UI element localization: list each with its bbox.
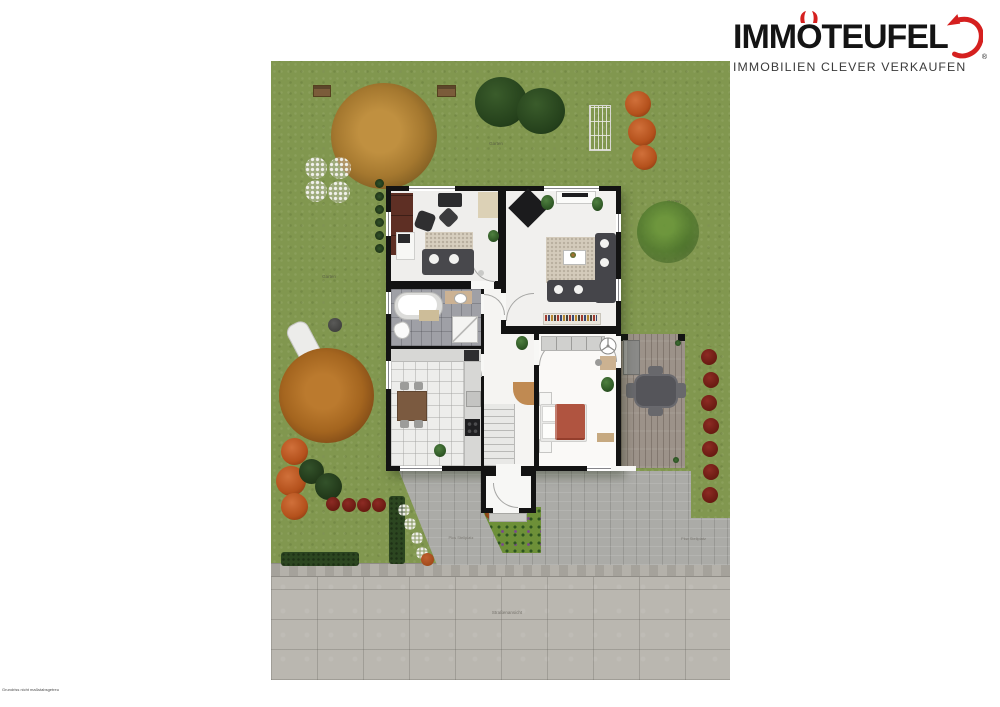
cooktop <box>465 419 480 436</box>
window <box>616 279 621 301</box>
garden-label: Garten <box>304 275 354 280</box>
potted-plant <box>488 230 499 242</box>
red-bush <box>372 498 386 512</box>
house-floorplan <box>386 186 621 471</box>
parking-label: Pkw Stellplatz <box>421 536 501 540</box>
brand-post: TEUFEL <box>822 18 948 56</box>
potted-plant <box>592 197 603 211</box>
window <box>386 361 391 389</box>
footer-disclaimer: Grundriss nicht maßstabsgetreu <box>2 688 59 692</box>
orange-bush <box>628 118 656 146</box>
registered-mark: ® <box>982 54 987 61</box>
red-bush <box>702 441 718 457</box>
garden-trellis <box>589 105 611 151</box>
dark-green-bush <box>315 473 342 500</box>
kitchen-sink <box>466 391 481 407</box>
parking-label: Pkw Stellplatz <box>656 537 730 541</box>
logo: IMMOTEUFEL ® IMMOBILIEN CLEVER VERKAUFEN <box>733 20 983 74</box>
window <box>587 466 613 471</box>
white-flower-bush <box>404 518 416 530</box>
potted-plant <box>516 336 528 350</box>
small-bush <box>375 218 384 227</box>
orange-bush <box>281 493 308 520</box>
vestibule-hall-opening <box>496 464 521 477</box>
green-tree <box>637 201 699 263</box>
window <box>409 186 455 191</box>
red-bush <box>703 464 719 480</box>
red-bush <box>703 372 719 388</box>
window <box>386 292 391 314</box>
page: IMMOTEUFEL ® IMMOBILIEN CLEVER VERKAUFEN <box>0 0 1000 707</box>
desk <box>438 193 462 207</box>
small-bush <box>375 244 384 253</box>
hedge <box>281 552 359 566</box>
books <box>545 315 597 321</box>
bed-pillow <box>542 423 556 439</box>
white-flower-bush <box>305 180 327 202</box>
devil-tail-icon <box>945 13 983 59</box>
small-bush <box>375 192 384 201</box>
street-pavement <box>271 575 730 680</box>
bed-pillow <box>542 406 556 422</box>
red-bush <box>703 418 719 434</box>
bed-duvet <box>555 404 585 440</box>
potted-plant <box>601 377 614 392</box>
terrace-table <box>634 374 678 408</box>
garden-bench <box>313 85 331 97</box>
kitchen-counter <box>464 362 481 466</box>
table-plant <box>570 252 576 258</box>
white-flower-bush <box>328 181 350 203</box>
white-flower-bush <box>305 157 327 179</box>
entrance-step <box>489 513 527 522</box>
driveway-pavement <box>389 466 730 565</box>
sofa-pillow <box>429 254 439 264</box>
stool <box>478 270 484 276</box>
terrace-chair <box>648 366 663 375</box>
orange-bush <box>632 145 657 170</box>
printer <box>398 234 410 243</box>
garden-bench <box>437 85 456 97</box>
window <box>400 466 442 471</box>
door-opening <box>611 466 636 471</box>
rug <box>478 192 498 218</box>
orange-bush <box>625 91 651 117</box>
dining-table <box>397 391 427 421</box>
devil-horns-icon <box>797 11 821 23</box>
dining-chair <box>400 420 409 428</box>
sink <box>454 293 467 304</box>
bedroom-bench <box>597 433 614 442</box>
garden-label: Garten <box>471 142 521 147</box>
sofa-pillow <box>600 239 609 248</box>
red-bush <box>342 498 356 512</box>
terrace-chair <box>676 383 686 398</box>
potted-plant <box>675 340 681 346</box>
dining-chair <box>414 420 423 428</box>
sofa-pillow <box>449 254 459 264</box>
dining-chair <box>400 382 409 390</box>
potted-plant <box>541 195 554 210</box>
sofa-pillow <box>554 285 563 294</box>
ceiling-fan-icon <box>599 337 617 355</box>
site-plan: Garten Garten Garten <box>271 61 730 680</box>
red-bush <box>357 498 371 512</box>
brand-text: IMMOTEUFEL <box>733 18 948 56</box>
potted-plant <box>434 444 446 457</box>
tv <box>562 193 588 197</box>
potted-plant <box>673 457 679 463</box>
terrace-chair <box>626 383 636 398</box>
garden-side-table <box>328 318 342 332</box>
small-bush <box>375 205 384 214</box>
brand-pre: IMM <box>733 18 796 56</box>
door-opening <box>534 340 539 365</box>
red-bush <box>326 497 340 511</box>
white-flower-bush <box>329 157 351 179</box>
bedroom-desk <box>600 356 616 370</box>
white-flower-bush <box>398 504 410 516</box>
autumn-tree <box>279 348 374 443</box>
dining-chair <box>414 382 423 390</box>
shower <box>452 316 478 343</box>
door-opening <box>471 281 494 289</box>
staircase <box>484 404 515 466</box>
sofa-pillow <box>600 258 609 267</box>
terrace-storage-box <box>623 340 640 375</box>
red-bush <box>701 395 717 411</box>
bath-mat <box>419 310 439 321</box>
kitchen-appliance <box>464 350 479 361</box>
sofa-pillow <box>574 285 583 294</box>
small-bush <box>375 231 384 240</box>
brand-o-wrap: O <box>796 20 821 56</box>
red-bush <box>702 487 718 503</box>
window <box>616 214 621 232</box>
terrace-chair <box>648 407 663 416</box>
desk-chair <box>595 359 602 366</box>
red-bush <box>701 349 717 365</box>
brand-o: O <box>796 18 821 56</box>
orange-bush <box>421 553 434 566</box>
brand-wordmark: IMMOTEUFEL ® <box>733 20 983 59</box>
street-label: Straßenansicht <box>457 611 557 616</box>
small-bush <box>375 179 384 188</box>
wardrobe <box>541 336 605 351</box>
logo-tagline: IMMOBILIEN CLEVER VERKAUFEN <box>733 60 983 74</box>
evergreen-tree <box>517 88 565 134</box>
